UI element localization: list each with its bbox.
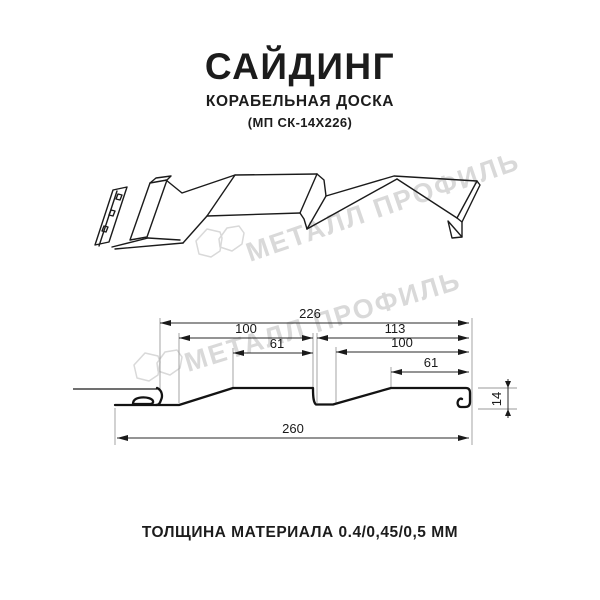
watermark-text: МЕТАЛЛ ПРОФИЛЬ bbox=[181, 265, 465, 378]
dim-left-wave-width: 100 bbox=[235, 321, 257, 336]
dim-right-wave-width: 100 bbox=[391, 335, 413, 350]
dim-total-width: 260 bbox=[282, 421, 304, 436]
dim-right-flat-width: 61 bbox=[424, 355, 438, 370]
dim-overall-cover-width: 226 bbox=[299, 306, 321, 321]
dim-left-flat-width: 61 bbox=[270, 336, 284, 351]
diagram-canvas: МЕТАЛЛ ПРОФИЛЬ bbox=[0, 0, 600, 600]
dim-right-section-width: 113 bbox=[385, 321, 406, 336]
catalog-page: { "header": { "title": "САЙДИНГ", "subti… bbox=[0, 0, 600, 600]
thickness-note: ТОЛЩИНА МАТЕРИАЛА 0.4/0,45/0,5 ММ bbox=[0, 524, 600, 542]
dim-profile-depth: 14 bbox=[489, 392, 504, 406]
watermark-text: МЕТАЛЛ ПРОФИЛЬ bbox=[242, 146, 523, 268]
metal-profil-logo-icon: МЕТАЛЛ ПРОФИЛЬ bbox=[196, 146, 524, 268]
